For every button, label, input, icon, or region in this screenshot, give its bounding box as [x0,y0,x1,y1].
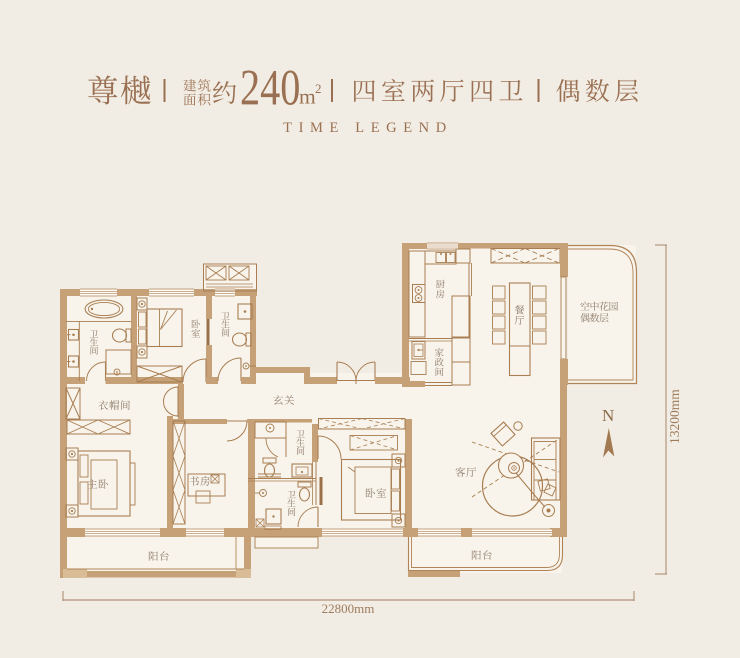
svg-text:2: 2 [315,81,322,96]
svg-text:m: m [299,85,316,109]
svg-text:240: 240 [240,59,300,116]
svg-text:13200mm: 13200mm [667,389,682,444]
svg-text:22800mm: 22800mm [322,601,375,616]
svg-text:N: N [602,406,614,425]
svg-text:TIME LEGEND: TIME LEGEND [283,120,453,136]
